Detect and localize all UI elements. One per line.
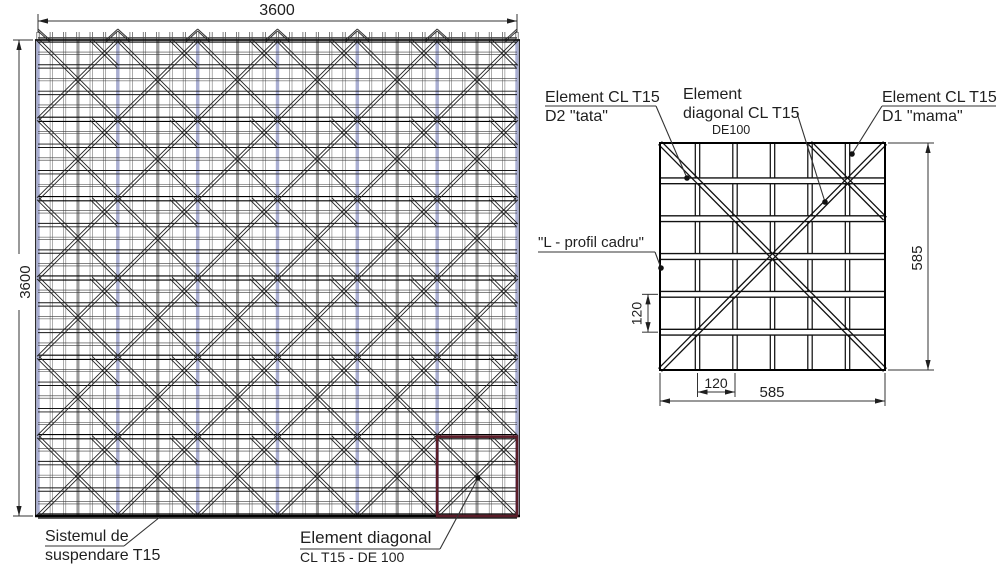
detail-dim-right-label: 585 xyxy=(910,228,926,288)
detail-lprofile-label: "L - profil cadru" xyxy=(538,235,644,251)
main-grid-suspension-profiles xyxy=(38,40,517,516)
technical-drawing-page: 3600 3600 Sistemul de suspendare T15 Ele… xyxy=(0,0,1000,570)
main-dimensions xyxy=(13,14,517,516)
detail-dim-cell-bottom-label: 120 xyxy=(696,376,736,391)
detail-d2-label-line1: Element CL T15 xyxy=(545,89,660,106)
main-dim-left-label: 3600 xyxy=(18,242,34,322)
detail-diagonal-label-line2: diagonal CL T15 xyxy=(683,105,800,122)
detail-d1-label-line1: Element CL T15 xyxy=(882,89,997,106)
diagonal-element-label-line2: CL T15 - DE 100 xyxy=(300,550,404,565)
detail-d2-label-line2: D2 "tata" xyxy=(545,108,608,125)
detail-diagonal-label-line3: DE100 xyxy=(712,124,750,138)
suspension-label-line1: Sistemul de xyxy=(45,528,129,545)
main-dim-top-label: 3600 xyxy=(237,2,317,19)
detail-horizontal-profiles xyxy=(660,178,885,335)
detail-d1-label-line2: D1 "mama" xyxy=(882,108,963,125)
detail-dim-bottom-label: 585 xyxy=(742,385,802,401)
detail-diagonal-label-line1: Element xyxy=(683,86,742,103)
suspension-label-line2: suspendare T15 xyxy=(45,547,160,564)
diagonal-element-label-line1: Element diagonal xyxy=(300,529,431,547)
drawing-canvas xyxy=(0,0,1000,570)
detail-dim-cell-left-label: 120 xyxy=(629,292,644,336)
